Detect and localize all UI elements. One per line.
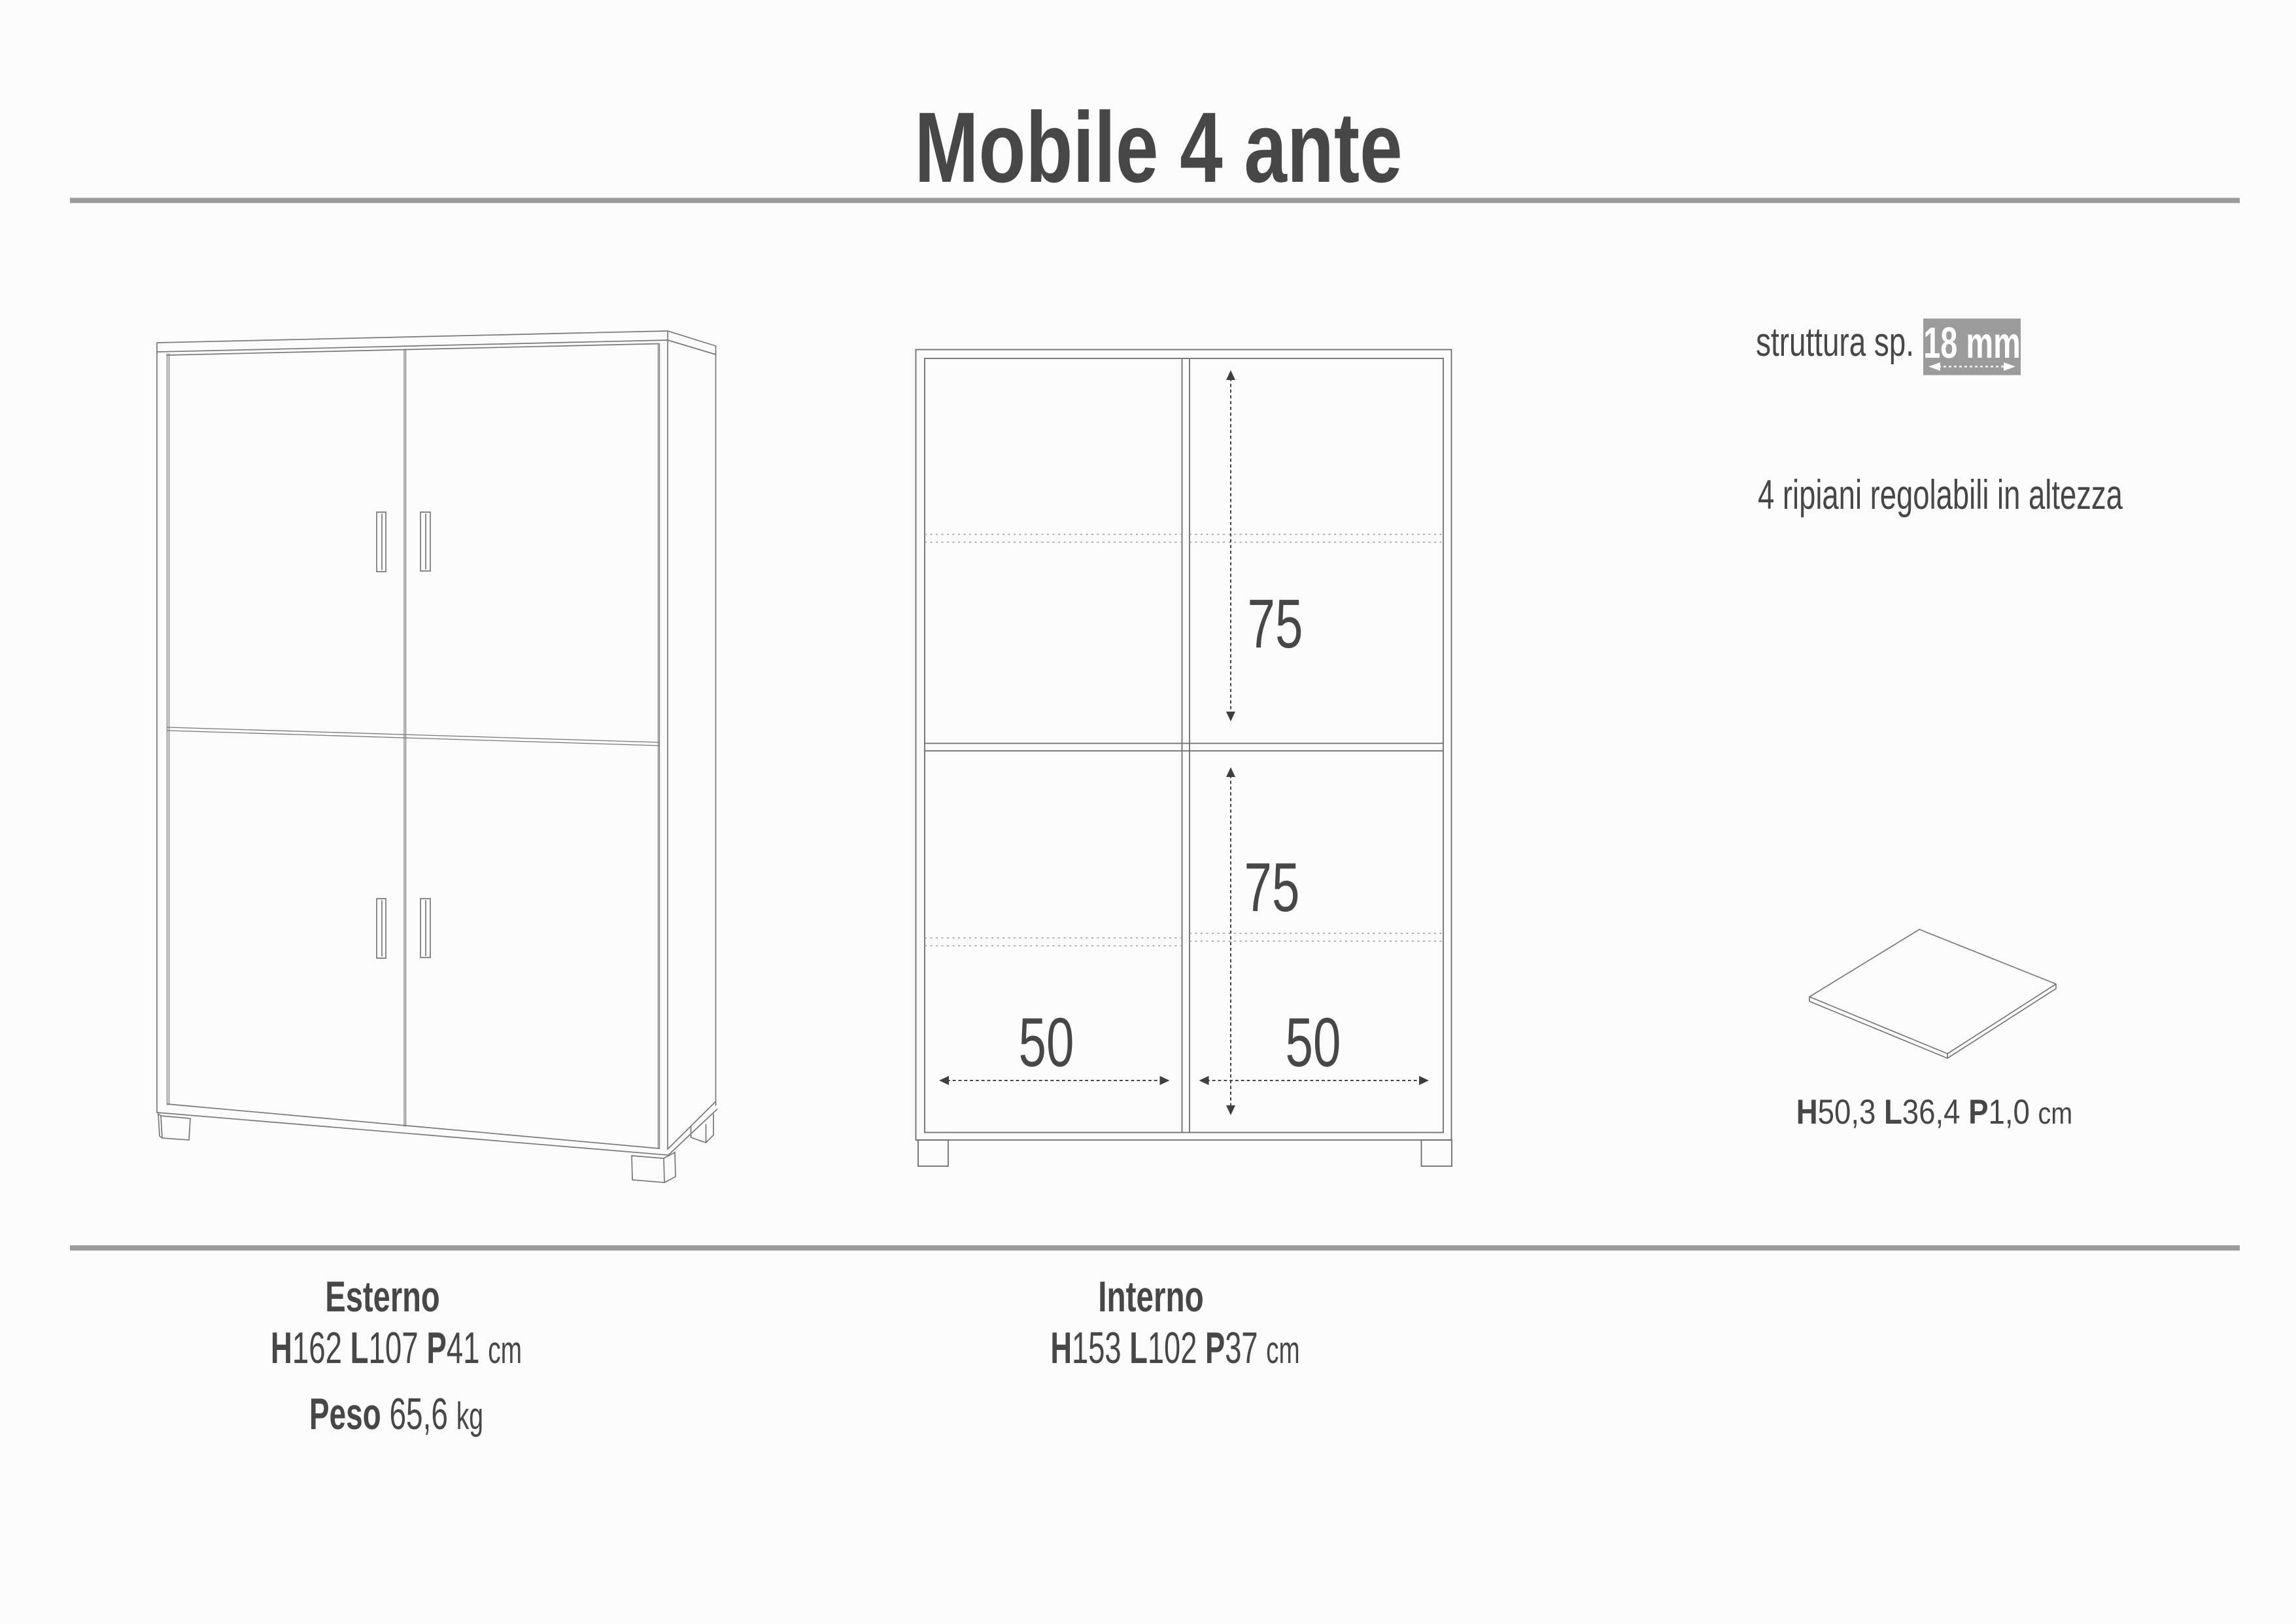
svg-text:50: 50: [1286, 1003, 1341, 1081]
svg-text:Esterno: Esterno: [325, 1273, 439, 1321]
svg-text:75: 75: [1244, 848, 1300, 926]
svg-text:H153 L102 P37 cm: H153 L102 P37 cm: [1050, 1324, 1299, 1373]
svg-text:H162 L107 P41 cm: H162 L107 P41 cm: [271, 1324, 522, 1373]
svg-text:H50,3 L36,4 P1,0 cm: H50,3 L36,4 P1,0 cm: [1796, 1093, 2073, 1132]
svg-text:struttura sp.: struttura sp.: [1756, 319, 1914, 364]
svg-text:Interno: Interno: [1098, 1273, 1203, 1321]
svg-text:Peso 65,6 kg: Peso 65,6 kg: [309, 1389, 483, 1439]
svg-text:4 ripiani regolabili in altezz: 4 ripiani regolabili in altezza: [1758, 472, 2123, 518]
svg-text:50: 50: [1019, 1003, 1074, 1081]
svg-text:75: 75: [1248, 585, 1303, 663]
svg-text:18 mm: 18 mm: [1923, 319, 2021, 368]
svg-text:Mobile 4 ante: Mobile 4 ante: [914, 91, 1402, 203]
